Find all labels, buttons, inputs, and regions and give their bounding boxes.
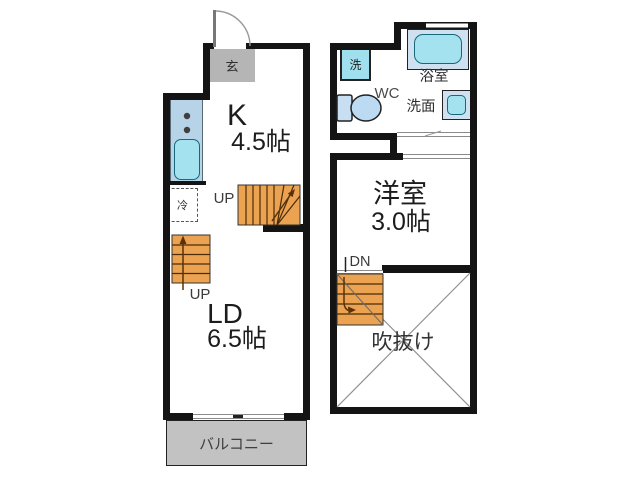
refrigerator: 冷 bbox=[167, 188, 198, 222]
balcony-label: バルコニー bbox=[199, 433, 274, 454]
stairs-up-icon bbox=[172, 235, 210, 290]
window bbox=[403, 154, 470, 159]
window bbox=[426, 23, 468, 28]
wall bbox=[330, 43, 337, 140]
western-room-size-label: 3.0帖 bbox=[371, 210, 431, 235]
atrium-label: 吹抜け bbox=[372, 332, 435, 353]
wall bbox=[163, 181, 206, 185]
wall bbox=[470, 22, 477, 414]
wall bbox=[333, 43, 401, 50]
bathtub-icon bbox=[414, 34, 462, 64]
stair-opening-line bbox=[337, 270, 383, 274]
washing-machine-icon: 洗 bbox=[340, 48, 371, 81]
wall bbox=[263, 224, 310, 232]
wc-label: WC bbox=[375, 86, 400, 101]
washbasin-icon bbox=[447, 95, 466, 115]
entrance-door-icon bbox=[215, 10, 251, 47]
washbasin-label: 洗面 bbox=[407, 100, 436, 115]
wall bbox=[284, 413, 310, 420]
wall bbox=[394, 22, 401, 50]
wall bbox=[203, 43, 210, 100]
living-dining-label: LD bbox=[207, 300, 243, 328]
kitchen-label: K bbox=[227, 101, 247, 131]
wall bbox=[330, 407, 477, 414]
wall bbox=[163, 93, 170, 420]
wall bbox=[163, 93, 210, 100]
window bbox=[397, 132, 470, 137]
floor-plan: 玄 冷 バルコニー 洗 bbox=[0, 0, 640, 480]
wall bbox=[246, 43, 310, 49]
stairs-up-winder-icon bbox=[238, 185, 300, 225]
living-dining-size-label: 6.5帖 bbox=[207, 327, 267, 352]
kitchen-size-label: 4.5帖 bbox=[231, 130, 291, 155]
wall bbox=[382, 265, 477, 273]
wall bbox=[330, 153, 337, 414]
bathroom-label: 浴室 bbox=[420, 70, 449, 85]
kitchen-sink-icon bbox=[174, 139, 200, 180]
window bbox=[193, 414, 284, 419]
wall bbox=[330, 133, 397, 140]
stairs-up-label-a: UP bbox=[214, 191, 235, 206]
western-room-label: 洋室 bbox=[373, 181, 427, 208]
entrance-hall: 玄 bbox=[209, 49, 255, 82]
wall bbox=[330, 153, 403, 160]
refrigerator-label: 冷 bbox=[177, 197, 188, 213]
stairs-down-label: DN bbox=[350, 255, 371, 270]
wall bbox=[163, 413, 193, 420]
washing-machine-label: 洗 bbox=[349, 56, 361, 73]
balcony: バルコニー bbox=[166, 420, 307, 466]
entrance-label: 玄 bbox=[225, 56, 238, 75]
